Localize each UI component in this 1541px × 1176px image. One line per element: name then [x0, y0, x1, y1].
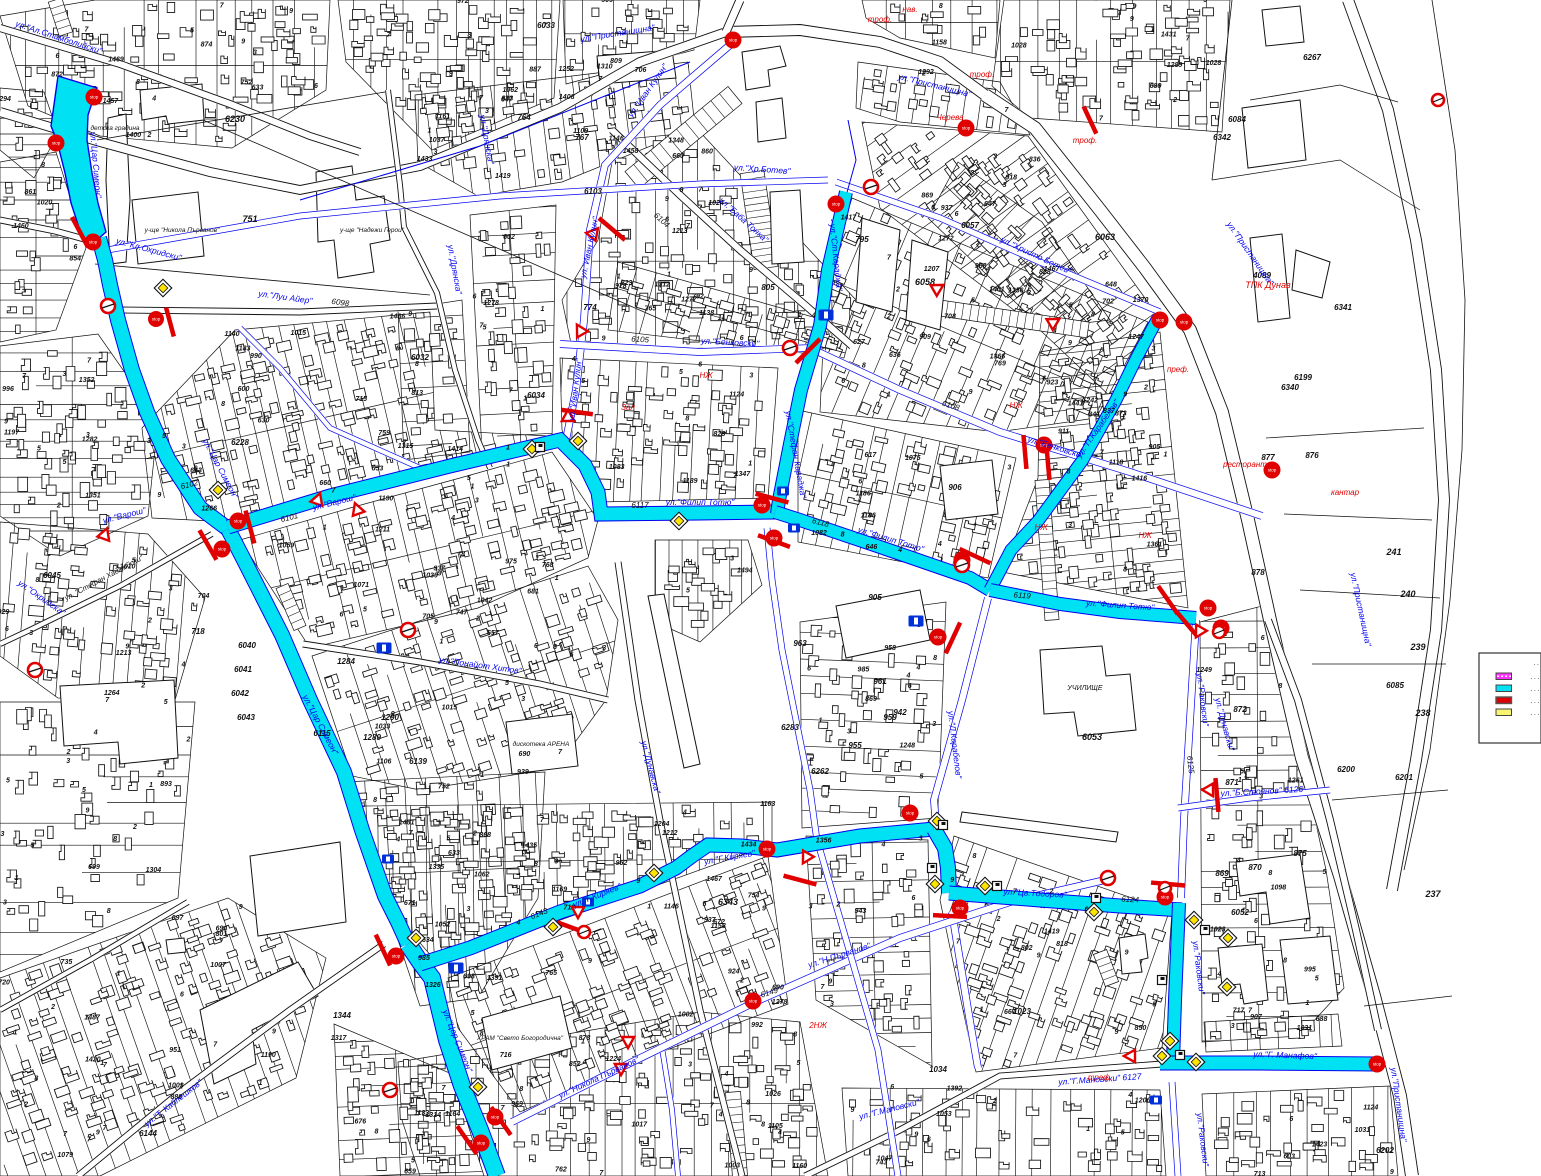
svg-text:3: 3 [1, 831, 5, 838]
svg-text:718: 718 [191, 627, 205, 636]
svg-text:6228: 6228 [231, 438, 249, 447]
svg-text:1: 1 [117, 970, 121, 977]
svg-text:6063: 6063 [1095, 232, 1115, 242]
svg-text:stop: stop [962, 126, 971, 131]
svg-text:у-ще "Никола Първанов": у-ще "Никола Първанов" [144, 227, 220, 234]
svg-text:6: 6 [534, 643, 538, 650]
svg-text:1: 1 [1238, 777, 1242, 784]
svg-text:1033: 1033 [375, 724, 391, 731]
svg-text:6341: 6341 [1334, 303, 1352, 312]
svg-text:1272: 1272 [938, 236, 954, 243]
svg-text:1317: 1317 [331, 1035, 348, 1042]
svg-text:1278: 1278 [483, 300, 499, 307]
svg-text:923: 923 [1047, 379, 1059, 386]
svg-text:9: 9 [828, 979, 832, 986]
svg-text:6: 6 [473, 294, 477, 301]
svg-text:9: 9 [4, 419, 8, 426]
svg-text:6340: 6340 [1281, 383, 1299, 392]
svg-text:9: 9 [239, 904, 243, 911]
svg-text:stop: stop [52, 141, 61, 146]
svg-text:5: 5 [467, 475, 471, 482]
svg-text:660: 660 [672, 153, 684, 160]
svg-text:6283: 6283 [781, 723, 799, 732]
svg-text:852: 852 [569, 1061, 581, 1068]
svg-text:1401: 1401 [989, 287, 1005, 294]
svg-text:6: 6 [912, 895, 916, 902]
svg-text:1190: 1190 [378, 496, 393, 503]
svg-text:1197: 1197 [4, 430, 20, 437]
svg-text:6: 6 [908, 683, 912, 690]
svg-text:3: 3 [182, 444, 186, 451]
svg-text:850: 850 [1135, 1025, 1147, 1032]
svg-text:1: 1 [887, 392, 891, 399]
svg-text:985: 985 [858, 666, 870, 673]
svg-text:667: 667 [1004, 1009, 1017, 1016]
svg-text:9: 9 [1123, 392, 1127, 399]
svg-text:708: 708 [944, 313, 956, 320]
svg-text:8: 8 [519, 1086, 523, 1093]
svg-text:2: 2 [835, 902, 840, 909]
svg-text:6: 6 [1042, 375, 1046, 382]
svg-text:2: 2 [50, 1004, 55, 1011]
svg-text:909: 909 [601, 0, 613, 4]
svg-text:6230: 6230 [225, 114, 245, 124]
svg-text:Черева: Черева [936, 113, 964, 122]
svg-text:648: 648 [1105, 282, 1117, 289]
svg-text:9: 9 [1109, 321, 1113, 328]
svg-text:6117: 6117 [631, 501, 649, 510]
svg-text:треф.: треф. [1088, 1073, 1112, 1082]
svg-text:1: 1 [470, 484, 474, 491]
svg-text:1294: 1294 [0, 96, 11, 103]
svg-text:1190: 1190 [261, 1052, 276, 1059]
svg-text:659: 659 [404, 1168, 416, 1175]
svg-text:4: 4 [916, 665, 921, 672]
svg-text:stop: stop [1180, 320, 1189, 325]
svg-text:8: 8 [793, 1032, 797, 1039]
svg-text:8: 8 [35, 577, 39, 584]
svg-text:stop: stop [832, 202, 841, 207]
svg-text:955: 955 [848, 741, 862, 750]
svg-text:1042: 1042 [477, 598, 493, 605]
svg-text:1031: 1031 [1297, 1025, 1313, 1032]
svg-text:1277: 1277 [681, 297, 698, 304]
svg-text:1138: 1138 [699, 310, 714, 317]
svg-text:6085: 6085 [1386, 681, 1404, 690]
svg-text:818: 818 [1056, 941, 1068, 948]
svg-text:5: 5 [6, 778, 10, 785]
svg-text:6: 6 [314, 83, 318, 90]
svg-text:1242: 1242 [1082, 397, 1098, 404]
svg-text:2: 2 [475, 616, 480, 623]
svg-text:6: 6 [5, 626, 9, 633]
svg-text:8: 8 [41, 162, 45, 169]
svg-text:765: 765 [545, 970, 557, 977]
svg-text:8: 8 [1268, 870, 1272, 877]
svg-text:1431: 1431 [1161, 32, 1177, 39]
svg-text:5: 5 [581, 378, 585, 385]
svg-text:1: 1 [748, 461, 752, 468]
svg-text:8: 8 [113, 836, 117, 843]
svg-text:9: 9 [1037, 952, 1041, 959]
svg-text:6042: 6042 [231, 689, 249, 698]
svg-text:1: 1 [1306, 1000, 1310, 1007]
svg-text:681: 681 [527, 589, 539, 596]
svg-text:647: 647 [984, 201, 997, 208]
svg-text:747: 747 [456, 610, 469, 617]
svg-text:6034: 6034 [527, 391, 545, 400]
svg-text:9: 9 [665, 196, 669, 203]
svg-text:6262: 6262 [811, 767, 829, 776]
svg-text:1031: 1031 [1355, 1127, 1371, 1134]
svg-text:869: 869 [865, 696, 877, 703]
svg-text:1284: 1284 [337, 657, 355, 666]
svg-text:3: 3 [554, 859, 558, 866]
svg-text:1124: 1124 [729, 392, 744, 399]
svg-text:1: 1 [440, 639, 444, 646]
svg-text:stop: stop [90, 95, 99, 100]
svg-text:ул."Филип Тотю": ул."Филип Тотю" [665, 497, 735, 507]
svg-text:преф.: преф. [1167, 365, 1189, 374]
svg-text:911: 911 [1058, 429, 1069, 436]
svg-text:1370: 1370 [1133, 297, 1149, 304]
svg-text:9: 9 [434, 619, 438, 626]
svg-text:8: 8 [746, 1099, 750, 1106]
svg-text:1458: 1458 [623, 148, 639, 155]
svg-text:5: 5 [363, 607, 367, 614]
svg-text:1441: 1441 [1068, 400, 1084, 407]
svg-text:2: 2 [66, 749, 71, 756]
svg-text:1075: 1075 [905, 455, 921, 462]
svg-text:676: 676 [354, 1119, 366, 1126]
svg-text:617: 617 [865, 452, 878, 459]
svg-text:1026: 1026 [765, 1091, 781, 1098]
svg-text:768: 768 [542, 562, 554, 569]
svg-text:4: 4 [682, 810, 687, 817]
svg-text:1: 1 [15, 875, 19, 882]
svg-text:1391: 1391 [487, 975, 503, 982]
svg-text:......: ...... [1530, 686, 1541, 693]
svg-text:8: 8 [461, 552, 465, 559]
svg-text:3: 3 [147, 438, 151, 445]
svg-text:1419: 1419 [1044, 928, 1060, 935]
svg-text:5: 5 [37, 446, 41, 453]
svg-text:795: 795 [855, 235, 869, 244]
svg-text:1204: 1204 [654, 821, 670, 828]
svg-text:1312: 1312 [655, 282, 671, 289]
svg-text:9: 9 [289, 8, 293, 15]
svg-text:1023: 1023 [1210, 926, 1226, 933]
svg-text:5: 5 [919, 774, 923, 781]
svg-text:774: 774 [583, 303, 597, 312]
svg-text:1083: 1083 [609, 464, 625, 471]
svg-text:643: 643 [190, 468, 202, 475]
svg-text:241: 241 [1385, 547, 1401, 557]
svg-text:1161: 1161 [435, 114, 450, 121]
svg-text:3: 3 [29, 630, 33, 637]
svg-text:854: 854 [69, 255, 81, 262]
svg-text:237: 237 [1424, 889, 1441, 899]
svg-text:2: 2 [132, 824, 137, 831]
svg-text:2: 2 [140, 683, 145, 690]
svg-text:1023: 1023 [1013, 1007, 1031, 1016]
svg-text:......: ...... [1530, 710, 1541, 717]
svg-text:751: 751 [242, 214, 257, 224]
svg-text:802: 802 [1021, 945, 1033, 952]
svg-text:3: 3 [688, 1062, 692, 1069]
svg-text:813: 813 [411, 390, 423, 397]
svg-text:2: 2 [146, 132, 151, 139]
svg-text:1007: 1007 [210, 962, 227, 969]
svg-text:3: 3 [602, 645, 606, 652]
svg-text:ТПК Дунав: ТПК Дунав [1245, 280, 1291, 290]
svg-text:715: 715 [355, 396, 367, 403]
svg-text:1: 1 [798, 312, 802, 319]
svg-text:238: 238 [1414, 708, 1430, 718]
svg-text:1416: 1416 [1132, 475, 1148, 482]
svg-text:2: 2 [895, 286, 900, 293]
svg-text:6: 6 [340, 611, 344, 618]
svg-text:1361: 1361 [1147, 541, 1163, 548]
svg-text:1212: 1212 [662, 830, 678, 837]
svg-text:3: 3 [1027, 290, 1031, 297]
svg-text:8: 8 [34, 1075, 38, 1082]
svg-text:1: 1 [718, 315, 722, 322]
svg-text:9: 9 [1130, 16, 1134, 23]
svg-text:8: 8 [1283, 957, 1287, 964]
svg-text:6199: 6199 [1294, 373, 1312, 382]
svg-text:2: 2 [886, 313, 891, 320]
svg-text:stop: stop [218, 547, 227, 552]
svg-text:1469: 1469 [108, 57, 124, 64]
svg-text:9: 9 [914, 1132, 918, 1139]
svg-text:828: 828 [714, 431, 726, 438]
svg-text:stop: stop [234, 519, 243, 524]
svg-text:4: 4 [811, 312, 816, 319]
svg-text:5: 5 [1121, 1129, 1125, 1136]
svg-text:8: 8 [415, 361, 419, 368]
svg-text:1392: 1392 [947, 1086, 963, 1093]
svg-text:8: 8 [107, 908, 111, 915]
svg-text:887: 887 [529, 66, 542, 73]
svg-text:1356: 1356 [1008, 288, 1024, 295]
svg-text:3: 3 [253, 50, 257, 57]
svg-text:603: 603 [1283, 1154, 1295, 1161]
svg-text:2: 2 [56, 502, 61, 509]
svg-text:893: 893 [160, 781, 172, 788]
svg-text:906: 906 [948, 483, 962, 492]
svg-text:1481: 1481 [399, 820, 415, 827]
svg-text:633: 633 [448, 850, 460, 857]
svg-text:2: 2 [992, 1098, 997, 1105]
svg-text:735: 735 [61, 959, 73, 966]
svg-text:4: 4 [724, 1071, 729, 1078]
svg-text:1434: 1434 [741, 841, 757, 848]
svg-text:stop: stop [1161, 895, 1170, 900]
svg-text:1: 1 [980, 1006, 984, 1013]
svg-text:1183: 1183 [235, 345, 250, 352]
svg-text:5: 5 [471, 1010, 475, 1017]
svg-text:1400: 1400 [126, 132, 142, 139]
svg-text:6: 6 [807, 666, 811, 673]
svg-text:875: 875 [1293, 849, 1307, 858]
svg-text:754: 754 [748, 892, 760, 899]
svg-text:5: 5 [679, 369, 683, 376]
svg-text:9: 9 [396, 346, 400, 353]
svg-text:1039: 1039 [422, 573, 438, 580]
svg-text:1052: 1052 [435, 922, 451, 929]
svg-text:stop: stop [477, 1141, 486, 1146]
svg-text:1247: 1247 [1128, 334, 1145, 341]
svg-text:1059: 1059 [279, 542, 295, 549]
svg-text:1105: 1105 [768, 1123, 783, 1130]
svg-text:3: 3 [86, 432, 90, 439]
svg-text:5: 5 [971, 298, 975, 305]
svg-text:5: 5 [411, 1157, 415, 1164]
svg-text:6: 6 [1261, 635, 1265, 642]
svg-text:1106: 1106 [376, 758, 391, 765]
svg-text:874: 874 [201, 41, 213, 48]
svg-text:1186: 1186 [856, 491, 871, 498]
svg-text:дискотека АРЕНА: дискотека АРЕНА [513, 740, 570, 748]
svg-text:3: 3 [809, 904, 813, 911]
svg-text:stop: stop [758, 503, 767, 508]
svg-text:6: 6 [931, 204, 935, 211]
svg-text:633: 633 [252, 84, 264, 91]
svg-text:8: 8 [373, 797, 377, 804]
svg-text:4: 4 [582, 1059, 587, 1066]
svg-text:1417: 1417 [841, 215, 858, 222]
svg-text:4: 4 [151, 96, 156, 103]
svg-text:689: 689 [1150, 83, 1162, 90]
svg-text:975: 975 [505, 558, 517, 565]
svg-text:1146: 1146 [664, 904, 679, 911]
svg-text:1266: 1266 [201, 506, 217, 513]
svg-text:6124: 6124 [1121, 895, 1140, 905]
svg-text:3: 3 [169, 585, 173, 592]
svg-text:stop: stop [1373, 1062, 1382, 1067]
svg-text:stop: stop [956, 906, 965, 911]
svg-text:3: 3 [847, 729, 851, 736]
svg-text:873: 873 [1115, 411, 1127, 418]
svg-text:653: 653 [372, 466, 384, 473]
svg-text:600: 600 [238, 386, 250, 393]
svg-text:1164: 1164 [445, 1111, 460, 1118]
svg-text:4: 4 [395, 837, 400, 844]
svg-text:905: 905 [868, 593, 882, 602]
svg-text:9: 9 [157, 492, 161, 499]
svg-text:961: 961 [873, 677, 887, 686]
svg-text:872: 872 [51, 71, 63, 78]
svg-text:stop: stop [89, 240, 98, 245]
svg-text:НЖ: НЖ [1138, 531, 1152, 540]
svg-text:9: 9 [86, 807, 90, 814]
svg-text:stop: stop [491, 1115, 500, 1120]
svg-text:6343: 6343 [718, 897, 738, 907]
svg-text:1347: 1347 [735, 471, 752, 478]
svg-text:3: 3 [970, 170, 974, 177]
svg-text:3: 3 [434, 149, 438, 156]
svg-text:8: 8 [468, 32, 472, 39]
svg-text:6: 6 [56, 53, 60, 60]
svg-text:2: 2 [996, 916, 1001, 923]
svg-text:3: 3 [1152, 345, 1156, 352]
svg-text:троф.: троф. [1073, 136, 1097, 145]
svg-text:нав.: нав. [902, 5, 917, 14]
svg-text:1: 1 [13, 1030, 17, 1037]
svg-text:1206: 1206 [1135, 1098, 1151, 1105]
svg-text:3: 3 [730, 556, 734, 563]
svg-text:8: 8 [862, 363, 866, 370]
svg-text:9: 9 [850, 1107, 854, 1114]
svg-text:9: 9 [241, 39, 245, 46]
svg-text:8: 8 [534, 861, 538, 868]
svg-text:1002: 1002 [678, 1011, 694, 1018]
svg-text:630: 630 [258, 418, 270, 425]
svg-text:860: 860 [701, 149, 713, 156]
svg-text:1433: 1433 [417, 156, 433, 163]
svg-text:3: 3 [1003, 182, 1007, 189]
svg-text:878: 878 [579, 1035, 591, 1042]
svg-text:1: 1 [506, 444, 510, 451]
svg-text:6: 6 [858, 478, 862, 485]
svg-text:1486: 1486 [390, 314, 406, 321]
svg-text:НЖ: НЖ [699, 371, 713, 380]
svg-text:1140: 1140 [224, 331, 239, 338]
svg-text:6084: 6084 [1228, 115, 1246, 124]
svg-text:9: 9 [1068, 340, 1072, 347]
svg-text:1: 1 [540, 306, 544, 313]
svg-text:1211: 1211 [375, 527, 390, 534]
svg-text:1124: 1124 [1363, 1105, 1378, 1112]
svg-text:4: 4 [516, 920, 521, 927]
svg-text:1160: 1160 [792, 1163, 807, 1170]
svg-text:stop: stop [934, 635, 943, 640]
svg-text:stop: stop [906, 811, 915, 816]
svg-text:1028: 1028 [1206, 60, 1222, 67]
svg-text:657: 657 [487, 630, 500, 637]
svg-text:690: 690 [519, 751, 531, 758]
svg-text:3: 3 [993, 153, 997, 160]
svg-text:8: 8 [761, 1122, 765, 1129]
svg-text:1: 1 [1151, 26, 1155, 33]
svg-text:872: 872 [1233, 705, 1247, 714]
svg-text:3: 3 [521, 696, 525, 703]
svg-text:5: 5 [446, 836, 450, 843]
svg-text:9: 9 [438, 571, 442, 578]
svg-text:8: 8 [939, 3, 943, 10]
svg-text:801: 801 [215, 931, 227, 938]
svg-text:699: 699 [88, 864, 100, 871]
svg-text:878: 878 [1251, 568, 1265, 577]
svg-text:990: 990 [250, 353, 262, 360]
svg-text:4: 4 [880, 842, 885, 849]
svg-text:stop: stop [1156, 318, 1165, 323]
svg-text:1460: 1460 [13, 223, 29, 230]
svg-text:4: 4 [1236, 858, 1241, 865]
svg-text:9: 9 [762, 906, 766, 913]
svg-text:240: 240 [1399, 589, 1415, 599]
svg-text:6045: 6045 [43, 571, 61, 580]
svg-text:1189: 1189 [682, 478, 697, 485]
svg-text:НЖ: НЖ [1009, 401, 1023, 410]
svg-text:1366: 1366 [990, 353, 1006, 360]
svg-text:троф.: троф. [868, 15, 892, 24]
svg-text:1344: 1344 [333, 1011, 351, 1020]
svg-text:1: 1 [258, 1080, 262, 1087]
svg-text:1304: 1304 [146, 867, 162, 874]
svg-text:4: 4 [718, 1111, 723, 1118]
